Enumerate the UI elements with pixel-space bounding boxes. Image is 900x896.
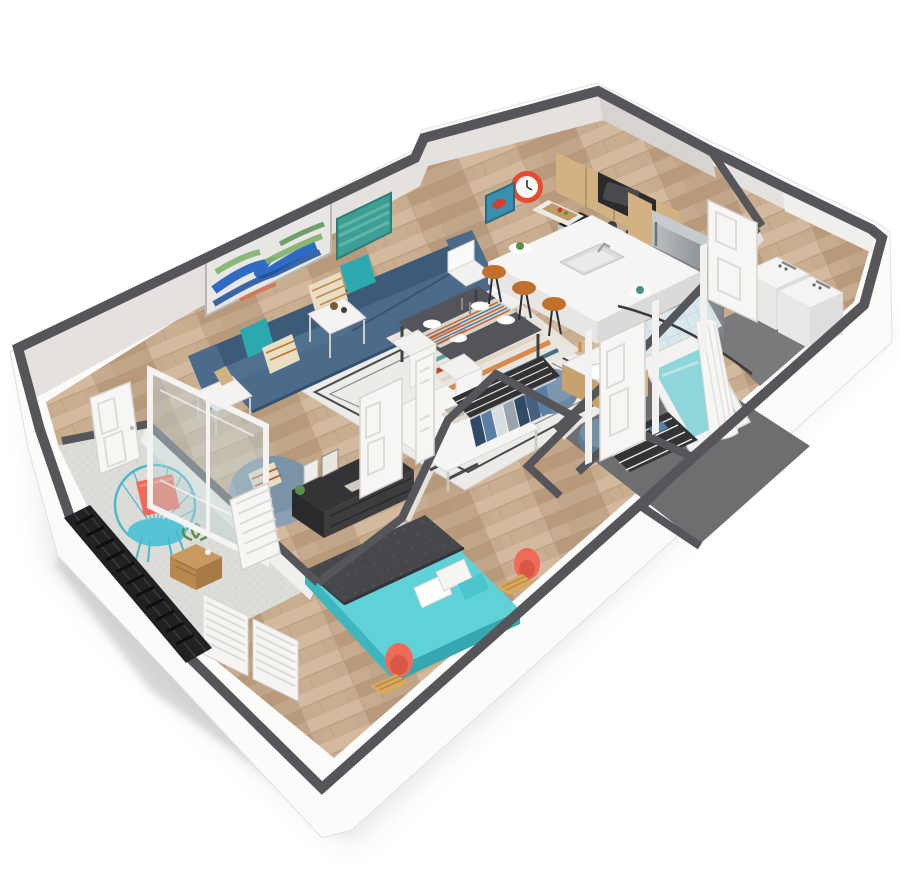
console-plant	[295, 485, 305, 495]
door-frame	[585, 329, 592, 465]
table-decor	[330, 302, 338, 310]
plate	[423, 320, 441, 329]
plate	[471, 302, 489, 311]
door-frame-2	[700, 243, 707, 355]
door-knob	[130, 426, 134, 430]
plate	[497, 316, 515, 325]
bar-stool	[542, 297, 566, 311]
bedroom-door	[360, 378, 402, 498]
floor-plan-stage	[0, 0, 900, 896]
wall-clock	[511, 171, 543, 203]
entry-door	[90, 382, 140, 474]
bedroom-door-2	[416, 353, 434, 464]
floor-plan-render	[0, 0, 900, 896]
door-frame-3	[652, 299, 659, 435]
bar-stool	[512, 281, 536, 295]
bar-stool	[482, 265, 506, 279]
decor-bowl	[205, 549, 211, 555]
